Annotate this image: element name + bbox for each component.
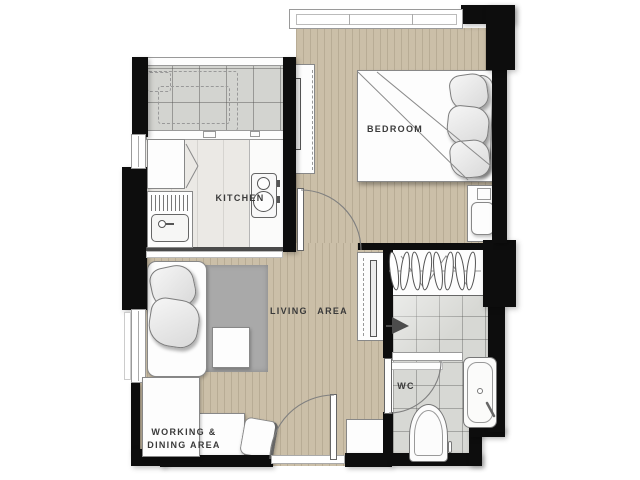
bed-pillow	[448, 138, 491, 179]
counter-top-edge	[145, 57, 286, 66]
kitchen-label: KITCHEN	[196, 192, 284, 205]
wall	[483, 240, 516, 307]
bedroom-window	[289, 9, 463, 29]
console-door-swing-dashed	[363, 258, 364, 336]
window-mullion	[349, 14, 350, 25]
wall	[492, 68, 507, 243]
sink-basin	[151, 214, 189, 242]
wall	[358, 243, 493, 250]
counter-handle	[203, 131, 216, 138]
living-area-label: LIVING AREA	[255, 305, 363, 318]
desk-chair	[239, 416, 279, 459]
wall	[383, 245, 393, 358]
window-inner-frame	[296, 14, 457, 25]
shower-sheen	[393, 295, 488, 353]
kitchen-living-counter	[146, 251, 283, 258]
wc-door	[384, 358, 392, 414]
wall	[383, 412, 393, 460]
bathtub-drain	[477, 388, 483, 394]
wall	[132, 57, 148, 137]
floor-plan: BEDROOM KITCHEN LIVING AREA WC WORKING &…	[0, 0, 640, 480]
shower-glass-partition	[392, 352, 463, 361]
wall	[122, 167, 147, 310]
faucet	[158, 220, 166, 228]
nightstand-item	[477, 188, 491, 200]
left-window-upper	[131, 134, 146, 169]
toilet-flush-handle	[448, 441, 452, 453]
window-mullion	[412, 14, 413, 25]
window-inner-line	[138, 136, 139, 167]
coffee-table	[212, 327, 250, 368]
stove-burner-small	[257, 177, 270, 190]
drainboard	[151, 195, 189, 211]
entry-cabinet	[346, 419, 386, 455]
entrance-door	[330, 394, 337, 460]
window-sill	[124, 312, 131, 380]
console-door-swing-dashed	[312, 70, 313, 170]
bedroom-label: BEDROOM	[350, 123, 440, 136]
working-dining-line1: WORKING &	[132, 426, 236, 439]
wc-label: WC	[392, 380, 420, 393]
window-inner-line	[138, 311, 139, 381]
left-window-lower	[131, 309, 146, 383]
tv-living	[370, 260, 377, 337]
working-dining-line2: DINING AREA	[132, 439, 236, 452]
refrigerator	[147, 139, 185, 189]
working-dining-label: WORKING & DINING AREA	[132, 426, 236, 452]
overhead-cabinet-dashed	[147, 72, 171, 92]
wall	[283, 57, 296, 252]
counter-handle	[250, 131, 260, 137]
nightstand-tray	[471, 202, 494, 235]
wardrobe	[386, 248, 484, 296]
wc-shelf	[391, 362, 443, 370]
toilet-bowl-inner	[414, 410, 443, 456]
faucet-spout	[166, 223, 174, 225]
wall	[486, 5, 515, 70]
stove-knob	[277, 180, 280, 187]
bedroom-door	[297, 188, 304, 251]
